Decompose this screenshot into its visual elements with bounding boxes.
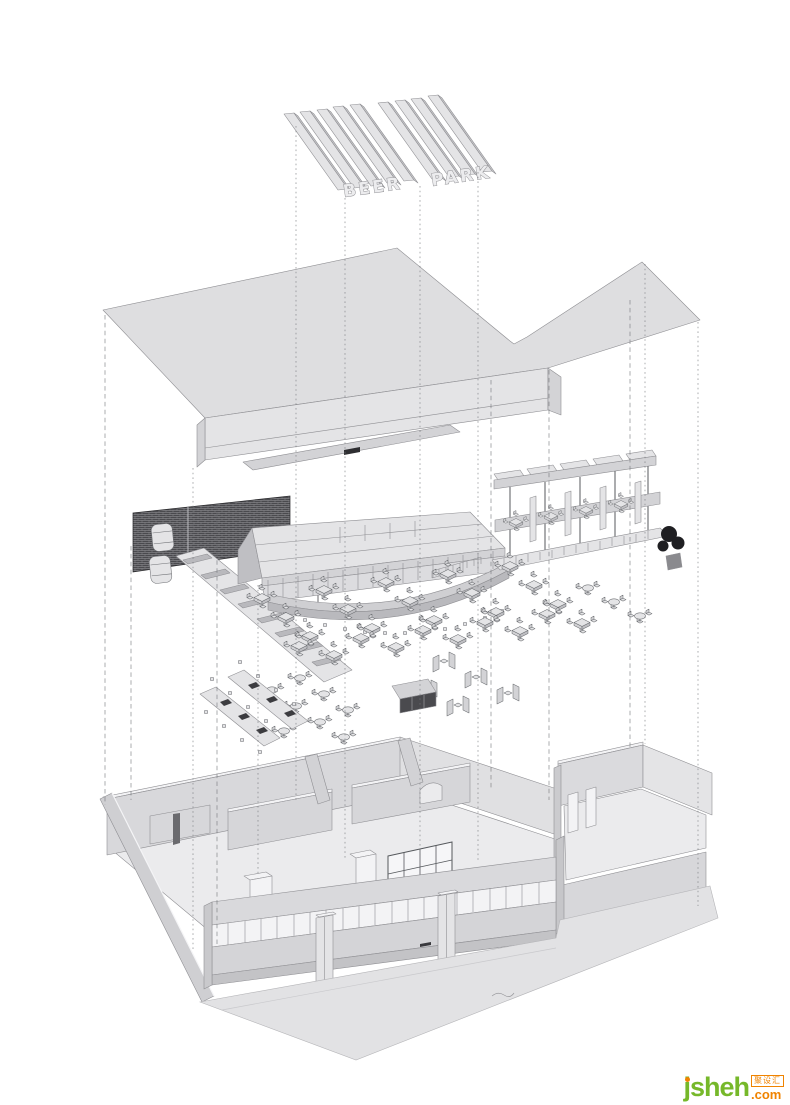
sign-text-right: PARK xyxy=(430,163,493,191)
roof-layer xyxy=(103,248,700,470)
exploded-axonometric-view: BEER PARK xyxy=(0,0,790,1105)
logo-badge: 聚设汇 xyxy=(751,1075,784,1087)
building-shell-layer xyxy=(100,737,718,1060)
roof-fascia-left-cap xyxy=(197,418,205,467)
logo-text: jsheh xyxy=(683,1074,749,1101)
brand-watermark[interactable]: jsheh 聚设汇 .com xyxy=(683,1074,784,1101)
plant xyxy=(658,526,685,570)
logo-tld: .com xyxy=(751,1088,781,1101)
service-cabinet xyxy=(392,679,436,713)
booth-seating-area xyxy=(492,450,685,570)
furniture-layer xyxy=(133,450,685,754)
sign-layer: BEER PARK xyxy=(284,95,496,202)
roof-fascia-end xyxy=(548,368,561,415)
